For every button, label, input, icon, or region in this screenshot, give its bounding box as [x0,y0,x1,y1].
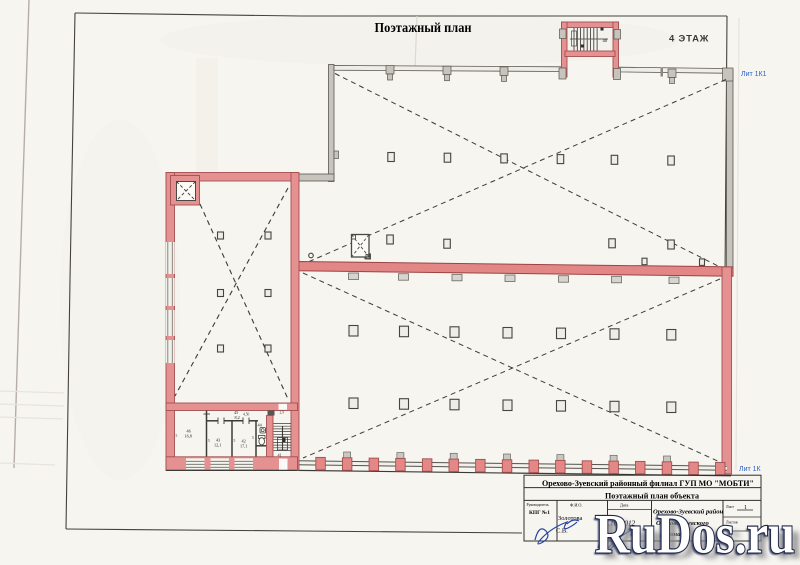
svg-text:4 ЭТАЖ: 4 ЭТАЖ [669,34,709,45]
svg-text:Руководитель: Руководитель [527,503,549,507]
svg-text:Лит 1К1: Лит 1К1 [741,71,767,78]
svg-text:Поэтажный план: Поэтажный план [375,20,472,35]
svg-text:5: 5 [208,439,210,443]
svg-text:5: 5 [252,436,254,440]
svg-text:RuDos.ru: RuDos.ru [595,504,795,565]
svg-text:Орехово-Зуевский районный фили: Орехово-Зуевский районный филиал ГУП МО … [542,478,754,488]
svg-text:40: 40 [603,38,608,43]
svg-text:КПГ №1: КПГ №1 [529,510,550,516]
svg-text:Лит 1К: Лит 1К [739,466,762,473]
svg-text:Ф.И.О.: Ф.И.О. [570,503,583,508]
svg-text:5: 5 [176,434,178,438]
svg-text:5: 5 [234,439,236,443]
svg-text:Поэтажный план объекта: Поэтажный план объекта [605,491,700,501]
